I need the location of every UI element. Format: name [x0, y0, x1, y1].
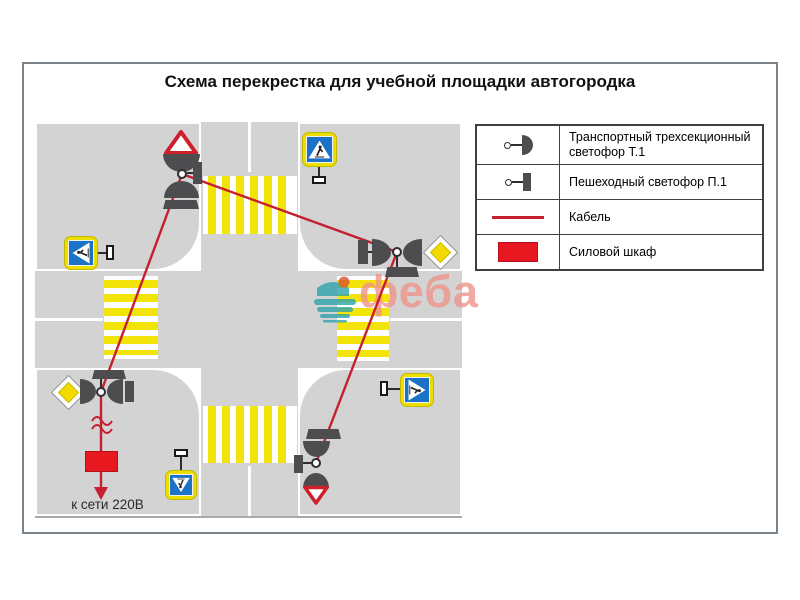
pedestrian-light-icon [380, 381, 388, 396]
pedestrian-light-p1-icon [477, 165, 560, 199]
pedestrian-crossing-sign-down [165, 470, 197, 500]
legend-row: Транспортный трехсекционный светофор Т.1 [477, 126, 762, 164]
legend-row: Кабель [477, 199, 762, 234]
pedestrian-light-icon [106, 245, 114, 260]
legend-table: Транспортный трехсекционный светофор Т.1… [475, 124, 764, 271]
cable-sample-icon [492, 216, 544, 219]
traffic-light-t1-icon [477, 126, 560, 164]
priority-road-sign-center [58, 382, 79, 403]
pedestrian-crossing-sign-face [68, 240, 94, 266]
priority-road-sign-frame [423, 235, 458, 270]
pole-dot-icon [504, 142, 511, 149]
pedestrian-light-icon [306, 429, 341, 439]
power-cabinet-icon [477, 235, 560, 269]
power-connection-label: к сети 220В [55, 497, 160, 512]
power-cabinet [85, 451, 118, 472]
pedestrian-crossing-sign-right [400, 373, 434, 407]
pole-arm-icon [512, 181, 523, 183]
priority-road-sign [424, 236, 456, 268]
intersection-scheme-page: Схема перекрестка для учебной площадки а… [0, 0, 800, 600]
pole-dot-icon [505, 179, 512, 186]
cabinet-sample-icon [498, 242, 538, 262]
pedestrian-crossing-pictogram-icon [69, 241, 93, 265]
legend-label: Кабель [560, 200, 762, 234]
pedestrian-light-icon [294, 455, 303, 473]
pedestrian-crossing-sign-face [169, 474, 193, 496]
pedestrian-light-icon [174, 449, 188, 457]
cable-icon [477, 200, 560, 234]
pedestrian-light-icon [163, 200, 199, 209]
legend-label: Транспортный трехсекционный светофор Т.1 [560, 126, 762, 164]
traffic-light-pole [96, 387, 106, 397]
pedestrian-crossing-sign-up [302, 132, 337, 167]
pedestrian-light-icon [125, 381, 134, 402]
light-rect-icon [523, 173, 531, 191]
pedestrian-crossing-pictogram-icon [307, 137, 332, 162]
pedestrian-crossing-sign-face [306, 136, 333, 163]
yield-sign-down [301, 484, 331, 507]
legend-row: Пешеходный светофор П.1 [477, 164, 762, 199]
traffic-light-pole [177, 169, 187, 179]
pedestrian-light-icon [358, 240, 368, 264]
legend-row: Силовой шкаф [477, 234, 762, 269]
pedestrian-light-icon [193, 162, 202, 184]
pedestrian-crossing-sign-face [404, 377, 430, 403]
traffic-light-pole [311, 458, 321, 468]
yield-sign-up [162, 128, 200, 157]
priority-road-sign-center [430, 242, 451, 263]
traffic-light-pole [392, 247, 402, 257]
pedestrian-light-icon [385, 267, 419, 277]
pedestrian-crossing-pictogram-icon [405, 378, 429, 402]
legend-label: Пешеходный светофор П.1 [560, 165, 762, 199]
pedestrian-crossing-sign-left [64, 236, 98, 270]
pedestrian-light-icon [92, 370, 126, 379]
pole-arm-icon [511, 144, 522, 146]
light-head-icon [522, 135, 533, 155]
pedestrian-crossing-pictogram-icon [170, 475, 192, 495]
pedestrian-light-icon [312, 176, 326, 184]
legend-label: Силовой шкаф [560, 235, 762, 269]
